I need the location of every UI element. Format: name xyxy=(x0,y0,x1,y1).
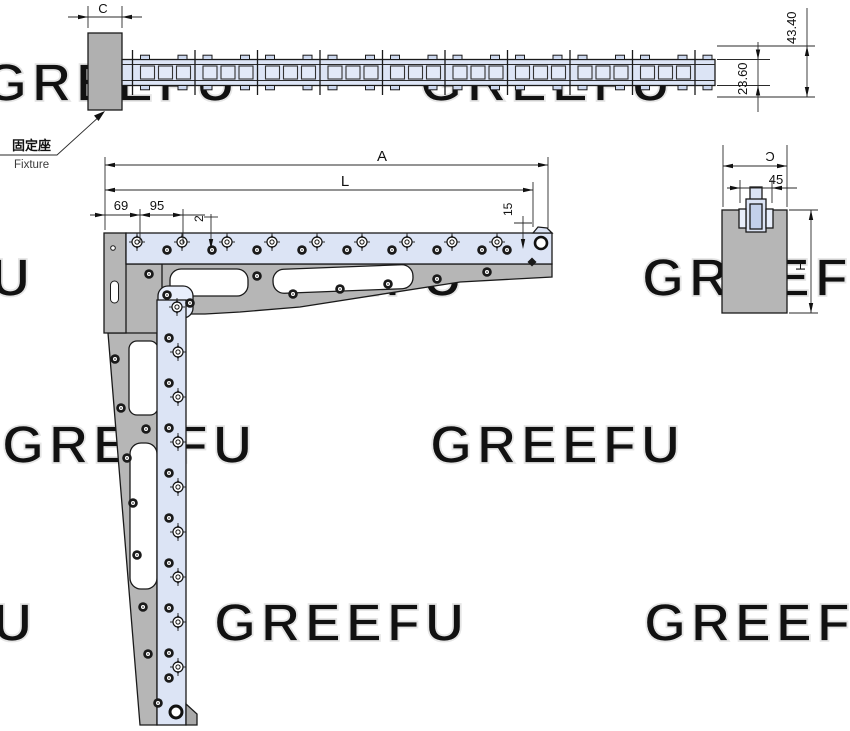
screw-plain-dot xyxy=(168,677,170,679)
dim-4340-label: 43.40 xyxy=(784,11,799,44)
chain-link-window xyxy=(516,66,530,79)
side-chain-roller xyxy=(750,204,762,229)
screw-target-ring xyxy=(492,237,502,247)
chain-tab-bottom xyxy=(303,86,312,90)
screw-target-ring xyxy=(173,662,183,672)
dim-69-label: 69 xyxy=(114,198,128,213)
screw-target-ring xyxy=(267,237,277,247)
screw-plain-dot xyxy=(136,554,138,556)
chain-link-window xyxy=(471,66,485,79)
chain-tab-top xyxy=(241,55,250,59)
screw-plain-dot xyxy=(211,249,213,251)
watermark-text: GREEFU xyxy=(214,593,469,653)
chain-link-window xyxy=(596,66,610,79)
screw-plain-dot xyxy=(189,302,191,304)
chain-link-window xyxy=(534,66,548,79)
chain-tab-bottom xyxy=(241,86,250,90)
screw-plain-dot xyxy=(481,249,483,251)
screw-target-ring xyxy=(177,237,187,247)
screw-plain-dot xyxy=(339,288,341,290)
chain-link-window xyxy=(453,66,467,79)
screw-plain-dot xyxy=(256,275,258,277)
screw-target-ring xyxy=(132,237,142,247)
screw-plain-dot xyxy=(292,293,294,295)
screw-plain-dot xyxy=(168,607,170,609)
screw-plain-dot xyxy=(145,428,147,430)
watermark-text: GREEFU xyxy=(0,248,35,308)
chain-link-window xyxy=(552,66,566,79)
chain-link-window xyxy=(266,66,280,79)
fixture-block xyxy=(88,33,122,110)
screw-plain-dot xyxy=(168,427,170,429)
chain-tab-top xyxy=(703,55,712,59)
chain-tab-bottom xyxy=(703,86,712,90)
screw-plain-dot xyxy=(256,249,258,251)
chain-link-window xyxy=(203,66,217,79)
strip-end-hole xyxy=(535,237,547,249)
chain-link-window xyxy=(391,66,405,79)
chain-tab-bottom xyxy=(366,86,375,90)
chain-tab-top xyxy=(578,55,587,59)
screw-target-ring xyxy=(173,437,183,447)
chain-tab-top xyxy=(178,55,187,59)
dim-h-label: H xyxy=(793,261,808,270)
chain-tab-bottom xyxy=(178,86,187,90)
screw-plain-dot xyxy=(506,249,508,251)
brace-cutout-upper xyxy=(129,341,158,415)
chain-tab-bottom xyxy=(391,86,400,90)
screw-target-ring xyxy=(173,527,183,537)
chain-link-window xyxy=(614,66,628,79)
fixture-label-cn: 固定座 xyxy=(12,138,51,153)
chain-link-window xyxy=(677,66,691,79)
strip-end-lug xyxy=(533,227,552,233)
chain-tab-bottom xyxy=(616,86,625,90)
dim-95-label: 95 xyxy=(150,198,164,213)
chain-tab-bottom xyxy=(266,86,275,90)
column-small-hole xyxy=(111,246,116,251)
column-slot xyxy=(111,281,119,303)
chain-tab-bottom xyxy=(553,86,562,90)
brace-cutout-lower xyxy=(130,443,157,589)
chain-tab-top xyxy=(328,55,337,59)
chain-link-window xyxy=(489,66,503,79)
chain-tab-top xyxy=(553,55,562,59)
chain-tab-top xyxy=(203,55,212,59)
chain-link-window xyxy=(177,66,191,79)
chain-tab-bottom xyxy=(516,86,525,90)
chain-link-window xyxy=(284,66,298,79)
screw-target-ring xyxy=(357,237,367,247)
bracket-side-view xyxy=(722,187,787,313)
chain-tab-top xyxy=(491,55,500,59)
chain-tab-bottom xyxy=(203,86,212,90)
chain-tab-top xyxy=(641,55,650,59)
chain-tab-top xyxy=(678,55,687,59)
chain-tab-top xyxy=(516,55,525,59)
fixture-callout: 固定座 Fixture xyxy=(0,111,105,171)
side-chain-lug-right xyxy=(766,209,773,228)
foot-hole xyxy=(170,706,182,718)
dim-c-top: C xyxy=(68,1,142,28)
dim-2360-label: 23.60 xyxy=(735,62,750,95)
screw-target-ring xyxy=(222,237,232,247)
watermark-text: GREEFU xyxy=(430,415,685,475)
watermark-text: GREEFU xyxy=(644,593,850,653)
dim-a-label: A xyxy=(377,148,387,165)
screw-plain-dot xyxy=(132,502,134,504)
chain-link-window xyxy=(302,66,316,79)
screw-plain-dot xyxy=(166,249,168,251)
chain-tab-top xyxy=(266,55,275,59)
screw-plain-dot xyxy=(147,653,149,655)
chain-link-window xyxy=(578,66,592,79)
screw-plain-dot xyxy=(120,407,122,409)
dim-15-label: 15 xyxy=(501,202,515,216)
chain-tab-top xyxy=(141,55,150,59)
screw-target-ring xyxy=(447,237,457,247)
dim-c-top-label: C xyxy=(98,1,107,16)
screw-plain-dot xyxy=(168,337,170,339)
foot-tab xyxy=(186,704,197,725)
chain-link-window xyxy=(364,66,378,79)
screw-plain-dot xyxy=(148,273,150,275)
screw-plain-dot xyxy=(142,606,144,608)
screw-plain-dot xyxy=(168,382,170,384)
chain-tab-bottom xyxy=(491,86,500,90)
chain-tab-bottom xyxy=(453,86,462,90)
chain-tab-top xyxy=(391,55,400,59)
chain-tab-bottom xyxy=(578,86,587,90)
chain-tab-bottom xyxy=(641,86,650,90)
chain-link-window xyxy=(328,66,342,79)
screw-plain-dot xyxy=(387,283,389,285)
screw-plain-dot xyxy=(166,294,168,296)
screw-plain-dot xyxy=(346,249,348,251)
chain-tab-top xyxy=(428,55,437,59)
horizontal-strip xyxy=(126,233,552,264)
chain-link-window xyxy=(409,66,423,79)
dims-chain-height: 23.60 43.40 xyxy=(717,8,815,112)
dim-c-side-label: C xyxy=(765,149,774,164)
chain-link-window xyxy=(159,66,173,79)
chain-tab-top xyxy=(453,55,462,59)
corner-block xyxy=(122,264,162,334)
screw-target-ring xyxy=(172,302,182,312)
screw-plain-dot xyxy=(391,249,393,251)
screw-target-ring xyxy=(173,572,183,582)
screw-plain-dot xyxy=(114,358,116,360)
watermark-text: GREEFU xyxy=(0,593,37,653)
chain-link-window xyxy=(221,66,235,79)
screw-target-ring xyxy=(312,237,322,247)
chain-link-window xyxy=(239,66,253,79)
screw-target-ring xyxy=(173,392,183,402)
screw-plain-dot xyxy=(157,702,159,704)
screw-plain-dot xyxy=(126,457,128,459)
screw-plain-dot xyxy=(436,249,438,251)
screw-target-ring xyxy=(173,347,183,357)
screw-plain-dot xyxy=(168,472,170,474)
chain-link-window xyxy=(141,66,155,79)
chain-link-window xyxy=(427,66,441,79)
fixture-label-en: Fixture xyxy=(14,159,49,171)
technical-drawing-page: GREEFUGREEFUGREEFUGREEFUGREEFUGREEFUGREE… xyxy=(0,0,850,731)
chain-tab-top xyxy=(303,55,312,59)
dim-2-label: 2 xyxy=(192,215,206,222)
chain-link-window xyxy=(641,66,655,79)
chain-link-window xyxy=(346,66,360,79)
chain-link-window xyxy=(659,66,673,79)
screw-target-ring xyxy=(173,482,183,492)
side-chain-lug-left xyxy=(739,209,746,228)
screw-plain-dot xyxy=(301,249,303,251)
screw-plain-dot xyxy=(436,278,438,280)
screw-plain-dot xyxy=(168,562,170,564)
screw-plain-dot xyxy=(168,652,170,654)
vertical-strip xyxy=(157,300,186,725)
chain-tab-bottom xyxy=(678,86,687,90)
dim-l-label: L xyxy=(341,173,349,190)
chain-tab-top xyxy=(616,55,625,59)
screw-target-ring xyxy=(173,617,183,627)
chain-tab-top xyxy=(366,55,375,59)
drawing-canvas: GREEFUGREEFUGREEFUGREEFUGREEFUGREEFUGREE… xyxy=(0,0,850,731)
chain-tab-bottom xyxy=(428,86,437,90)
screw-plain-dot xyxy=(486,271,488,273)
screw-target-ring xyxy=(402,237,412,247)
dim-45-label: 45 xyxy=(769,172,783,187)
screw-plain-dot xyxy=(168,517,170,519)
chain-tab-bottom xyxy=(328,86,337,90)
chain-tab-bottom xyxy=(141,86,150,90)
